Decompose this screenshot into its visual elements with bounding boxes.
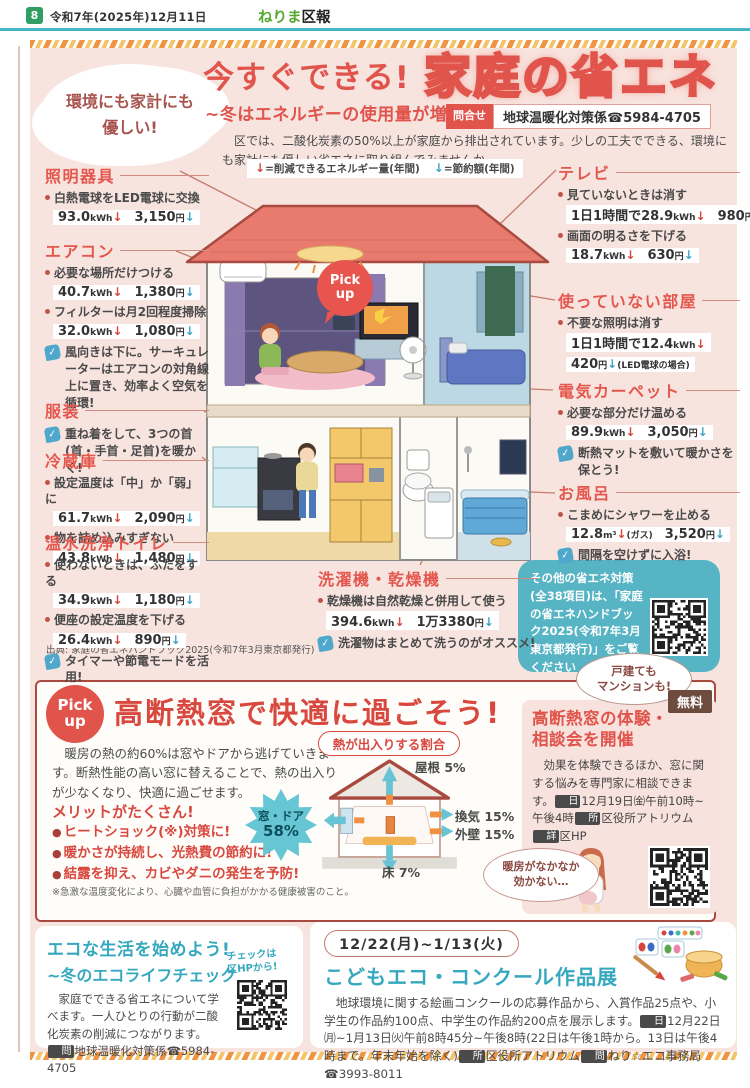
value-line: 1日1時間で12.4kWh↓ — [566, 333, 711, 352]
item-title: 電気カーペット — [558, 378, 740, 402]
energy-item-right-3: お風呂こまめにシャワーを止める12.8m³↓(ガス)3,520円↓✓間隔を空けず… — [558, 480, 740, 564]
heater — [386, 817, 394, 834]
down-arrow-red-icon: ↓ — [625, 248, 635, 262]
cook-body — [296, 462, 318, 492]
info-box-icon: 詳 — [533, 830, 559, 843]
article-subtitle: ~冬はエネルギーの使用量が増加 — [205, 100, 465, 125]
leader-line — [446, 578, 538, 579]
publication-name-green: ねりま — [258, 10, 302, 26]
eyecatch-cloud-bubble: 環境にも家計にも 優しい! — [40, 64, 220, 166]
energy-item-right-0: テレビ見ていないときは消す1日1時間で28.9kWh↓980円↓画面の明るさを下… — [558, 160, 740, 264]
info-box-icon: 所 — [459, 1050, 485, 1063]
publication-name: ねりま区報 — [258, 6, 331, 27]
energy-item-right-2: 電気カーペット必要な部分だけ温める89.9kWh↓3,050円↓✓断熱マットを敷… — [558, 378, 740, 479]
tip-text: 乾燥機は自然乾燥と併用して使う — [318, 593, 538, 609]
contact-value: 地球温暖化対策係☎5984-4705 — [493, 104, 711, 129]
value-line: 1日1時間で28.9kWh↓980円↓ — [566, 205, 750, 224]
energy-item-bottom: 洗濯機・乾燥機乾燥機は自然乾燥と併用して使う394.6kWh↓1万3380円↓✓… — [318, 566, 538, 652]
leader-line — [120, 175, 209, 176]
legend-money: ↓=節約額(年間) — [434, 161, 515, 176]
woman-head — [262, 328, 278, 344]
tip-text: 必要な部分だけ温める — [558, 405, 740, 421]
art-supplies-illustration — [628, 925, 728, 983]
bullet-icon — [558, 233, 563, 238]
down-arrow-blue-icon: ↓ — [684, 248, 694, 262]
down-arrow-red-icon: ↓ — [112, 285, 122, 299]
pickup-badge: Pickup — [46, 685, 104, 743]
down-arrow-blue-icon: ↓ — [185, 324, 195, 338]
value-line: 61.7kWh↓2,090円↓ — [53, 511, 200, 526]
low-table — [287, 351, 363, 373]
contact-badge: 問合せ — [446, 104, 493, 129]
down-arrow-red-icon: ↓ — [625, 425, 635, 439]
tip-text: 便座の設定温度を下げる — [45, 612, 209, 628]
contest-body: 地球環境に関する絵画コンクールの応募作品から、入賞作品25点や、小学生の作品約1… — [324, 995, 722, 1083]
energy-item-left-1: エアコン必要な場所だけつける40.7kWh↓1,380円↓フィルターは月2回程度… — [45, 238, 209, 412]
check-icon: ✓ — [557, 547, 574, 564]
bullet-icon — [45, 562, 50, 567]
bathtub — [463, 498, 527, 534]
down-arrow-blue-icon: ↓ — [185, 593, 195, 607]
check-icon: ✓ — [44, 652, 61, 669]
label-wall-pct: 外壁 15% — [455, 824, 514, 843]
bedroom-curtain — [485, 266, 515, 336]
leader-line — [616, 172, 740, 173]
consultation-qr-code — [648, 846, 710, 908]
pickup-title: 高断熱窓で快適に過ごそう! — [114, 690, 501, 732]
contact-row: 問合せ 地球温暖化対策係☎5984-4705 — [446, 104, 711, 129]
energy-item-right-1: 使っていない部屋不要な照明は消す1日1時間で12.4kWh↓420円↓(LED電… — [558, 288, 740, 373]
woman-body — [259, 344, 281, 370]
check-tip: ✓断熱マットを敷いて暖かさを保とう! — [558, 445, 740, 479]
info-box-icon: 問 — [581, 1050, 607, 1063]
info-box-icon: 日 — [555, 795, 581, 808]
down-arrow-red-icon: ↓ — [112, 511, 122, 525]
warm-mat — [363, 837, 417, 845]
check-icon: ✓ — [44, 426, 61, 443]
legend-energy: ↓=削減できるエネルギー量(年間) — [255, 161, 420, 176]
complaint-speech-bubble: 暖房がなかなか効かない… — [483, 848, 599, 902]
item-title: お風呂 — [558, 480, 740, 504]
bullet-icon — [45, 309, 50, 314]
contest-box: 12/22(月)~1/13(火) こどもエコ・コンクール作品展 地球環境に関する… — [310, 922, 736, 1048]
tip-text: 白熱電球をLED電球に交換 — [45, 190, 209, 206]
down-arrow-red-icon: ↓ — [112, 633, 122, 647]
value-line: 420円↓(LED電球の場合) — [566, 357, 695, 372]
check-tip: ✓洗濯物はまとめて洗うのがオススメ! — [318, 635, 538, 652]
info-box-icon: 所 — [575, 812, 601, 825]
consultation-body: 効果を体験できるほか、窓に関する悩みを専門家に相談できます。日12月19日㈮午前… — [532, 757, 708, 846]
shower-head — [464, 446, 472, 454]
consultation-title: 高断熱窓の体験・ 相談会を開催 — [532, 708, 708, 751]
bath-window — [500, 440, 526, 474]
toilet-tank — [407, 450, 429, 470]
merits-title: メリットがたくさん! — [52, 801, 194, 822]
bullet-icon — [45, 480, 50, 485]
toilet-seat — [405, 473, 431, 489]
label-vent-pct: 換気 15% — [455, 806, 514, 825]
leader-line — [120, 250, 209, 251]
item-title: テレビ — [558, 160, 740, 184]
ceiling-light — [297, 246, 363, 262]
aircon-unit — [220, 260, 266, 282]
heat-diagram-title: 熱が出入りする割合 — [318, 731, 460, 756]
rice-cooker — [369, 468, 384, 482]
tip-text: 不要な照明は消す — [558, 315, 740, 331]
tip-text: フィルターは月2回程度掃除 — [45, 304, 209, 320]
down-arrow-red-icon: ↓ — [255, 161, 265, 175]
eco-qr-code — [235, 978, 289, 1032]
value-line: 89.9kWh↓3,050円↓ — [566, 425, 713, 440]
eco-body: 家庭でできる省エネについて学べます。一人ひとりの行動が二酸化炭素の削減につながり… — [47, 991, 223, 1077]
item-title: 照明器具 — [45, 163, 209, 187]
bath-floor — [457, 532, 530, 560]
leader-line — [173, 542, 209, 543]
handbook-qr-code — [650, 598, 708, 656]
check-icon: ✓ — [317, 635, 334, 652]
down-arrow-blue-icon: ↓ — [185, 285, 195, 299]
info-box-icon: 日 — [640, 1015, 666, 1028]
down-arrow-red-icon: ↓ — [112, 593, 122, 607]
page-fold-line — [18, 46, 20, 1052]
value-line: 34.9kWh↓1,180円↓ — [53, 593, 200, 608]
tip-text: 設定温度は「中」か「弱」に — [45, 475, 209, 507]
label-floor-pct: 床 7% — [382, 862, 420, 881]
label-roof-pct: 屋根 5% — [415, 757, 466, 776]
energy-item-left-0: 照明器具白熱電球をLED電球に交換93.0kWh↓3,150円↓ — [45, 163, 209, 226]
bullet-icon — [45, 617, 50, 622]
bullet-icon — [558, 192, 563, 197]
tip-text: 見ていないときは消す — [558, 187, 740, 203]
leader-line — [616, 492, 740, 493]
check-tip: ✓間隔を空けずに入浴! — [558, 547, 740, 564]
value-line: 40.7kWh↓1,380円↓ — [53, 285, 200, 300]
value-legend: ↓=削減できるエネルギー量(年間) ↓=節約額(年間) — [247, 159, 523, 178]
tip-text: 画面の明るさを下げる — [558, 228, 740, 244]
roof — [187, 206, 548, 262]
cook-head — [300, 448, 315, 463]
eyecatch-line2: 優しい! — [102, 115, 157, 141]
down-arrow-red-icon: ↓ — [696, 337, 706, 351]
leader-line — [686, 390, 740, 391]
microwave — [335, 464, 363, 482]
bullet-icon — [558, 410, 563, 415]
value-line: 12.8m³↓(ガス)3,520円↓ — [566, 527, 730, 542]
oven-window — [263, 490, 293, 510]
article-title-lead: 今すぐできる! — [203, 52, 410, 97]
leader-line — [702, 300, 740, 301]
check-icon: ✓ — [557, 445, 574, 462]
value-line: 394.6kWh↓1万3380円↓ — [326, 611, 499, 630]
woman-legs — [261, 367, 289, 375]
bullet-icon — [45, 195, 50, 200]
down-arrow-red-icon: ↓ — [696, 209, 706, 223]
issue-date: 令和7年(2025年)12月11日 — [50, 9, 207, 25]
bath-bucket — [491, 538, 511, 546]
bullet-icon — [318, 598, 323, 603]
bullet-icon — [558, 320, 563, 325]
item-title: 服装 — [45, 398, 209, 422]
tip-text: 使わないときは、ふたをする — [45, 557, 209, 589]
contest-date-pill: 12/22(月)~1/13(火) — [324, 930, 519, 957]
merit-item: 結露を抑え、カビやダニの発生を予防! — [52, 864, 299, 885]
free-badge: 無料 — [668, 690, 712, 713]
house-cutaway-illustration — [185, 200, 550, 575]
down-arrow-red-icon: ↓ — [112, 210, 122, 224]
bullet-icon — [558, 512, 563, 517]
merit-footnote: ※急激な温度変化により、心臓や血管に負担がかかる健康被害のこと。 — [52, 886, 357, 900]
header-rule — [0, 28, 750, 31]
value-line: 26.4kWh↓890円↓ — [53, 633, 186, 648]
value-line: 32.0kWh↓1,080円↓ — [53, 324, 200, 339]
tip-text: 必要な場所だけつける — [45, 265, 209, 281]
eco-life-check-box: エコな生活を始めよう! ~冬のエコライフチェック 家庭でできる省エネについて学べ… — [35, 926, 303, 1048]
energy-item-left-4: 温水洗浄トイレ使わないときは、ふたをする34.9kWh↓1,180円↓便座の設定… — [45, 530, 209, 686]
pillow — [449, 343, 467, 353]
value-line: 18.7kWh↓630円↓ — [566, 248, 699, 263]
window-door-pct: 窓・ドア 58% — [244, 788, 318, 862]
refrigerator — [213, 447, 258, 507]
item-title: 洗濯機・乾燥機 — [318, 566, 538, 590]
article-title-main: 家庭の省エネ — [424, 38, 718, 107]
down-arrow-blue-icon: ↓ — [484, 615, 494, 629]
washer-lid — [428, 492, 450, 502]
leader-line — [85, 410, 209, 411]
publication-name-dark: 区報 — [302, 10, 331, 26]
down-arrow-red-icon: ↓ — [394, 615, 404, 629]
bed — [447, 350, 525, 384]
info-box-icon: 問 — [48, 1045, 74, 1058]
leader-line — [103, 460, 209, 461]
down-arrow-blue-icon: ↓ — [171, 633, 181, 647]
check-icon: ✓ — [44, 344, 61, 361]
clock-display — [333, 316, 355, 330]
curtain-left — [225, 274, 245, 386]
item-title: 温水洗浄トイレ — [45, 530, 209, 554]
bullet-icon — [45, 270, 50, 275]
down-arrow-blue-icon: ↓ — [434, 161, 444, 175]
item-title: 冷蔵庫 — [45, 448, 209, 472]
down-arrow-blue-icon: ↓ — [715, 527, 725, 541]
floor-band — [207, 405, 530, 417]
tip-text: こまめにシャワーを止める — [558, 507, 740, 523]
page-number-badge: 8 — [26, 7, 43, 24]
stove — [258, 458, 300, 520]
check-tip: ✓タイマーや節電モードを活用! — [45, 653, 209, 687]
value-line: 93.0kWh↓3,150円↓ — [53, 210, 200, 225]
down-arrow-blue-icon: ↓ — [607, 357, 617, 371]
pickup-speech-bubble: Pickup — [317, 260, 373, 316]
item-title: エアコン — [45, 238, 209, 262]
down-arrow-red-icon: ↓ — [616, 527, 626, 541]
down-arrow-blue-icon: ↓ — [185, 511, 195, 525]
eyecatch-line1: 環境にも家計にも — [66, 89, 194, 115]
item-title: 使っていない部屋 — [558, 288, 740, 312]
down-arrow-red-icon: ↓ — [112, 324, 122, 338]
down-arrow-blue-icon: ↓ — [698, 425, 708, 439]
down-arrow-blue-icon: ↓ — [185, 210, 195, 224]
